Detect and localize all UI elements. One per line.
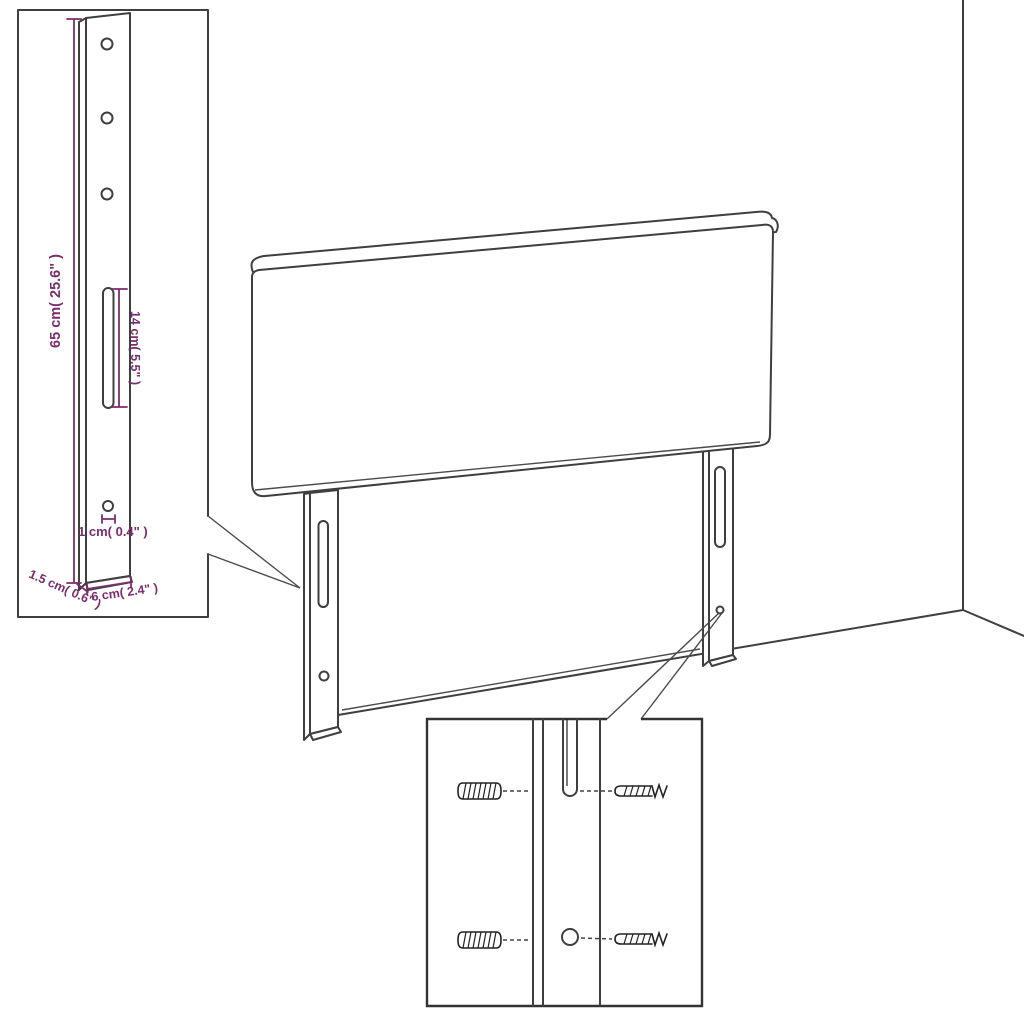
mounting-detail-drawing [533,719,600,1006]
screw-icon-bottom [615,933,667,945]
wall-plug-icon-bottom [458,932,501,948]
detail-slot [103,288,114,408]
bottom-inset-border [427,719,702,1006]
wall-plug-icon-top [458,783,501,799]
dimension-leg-height: 65 cm( 25.6" ) [48,19,81,583]
detail-hole-2 [102,113,113,124]
screw-threads [624,786,651,796]
screw-shaft [615,934,652,944]
callout-line-hole-right [641,613,722,719]
left-leg-hole [320,672,329,681]
right-leg-hole [717,607,724,614]
main-scene [251,0,1024,740]
screw-icon-top [615,785,667,797]
dimension-hole-size-label: 1 cm( 0.4" ) [78,524,148,539]
dash-screw-bottom [581,938,612,939]
detail-hole-1 [102,39,113,50]
screw-shaft [615,786,652,796]
left-leg-slot [319,521,329,607]
bottom-detail-inset [427,613,722,1006]
dimension-leg-height-label: 65 cm( 25.6" ) [48,254,64,348]
screw-tip [652,785,667,797]
right-mounting-leg [703,444,736,666]
callout-line-upper [208,516,300,588]
screw-threads [624,934,651,944]
dimension-slot-length-label: 14 cm( 5.5" ) [128,311,142,385]
floor-line-right [963,610,1024,636]
mount-hole [562,929,578,945]
detail-small-hole [103,501,113,511]
detail-leg-side-face [79,18,86,590]
diagram-canvas: 65 cm( 25.6" ) 14 cm( 5.5" ) 1 cm( 0.4" … [0,0,1024,1024]
right-leg-slot [715,467,725,547]
leg-detail-drawing [79,13,132,590]
mount-slot [563,719,577,796]
floor-line-inner [342,649,700,710]
headboard-panel [251,212,777,496]
detail-hole-3 [102,189,113,200]
wall-plug-ribs [463,932,496,948]
wall-plug-ribs [463,783,496,799]
left-mounting-leg [304,490,341,740]
headboard-front-face [252,225,773,496]
floor-line-left [338,610,963,715]
screw-tip [652,933,667,945]
callout-line-lower [208,554,300,588]
